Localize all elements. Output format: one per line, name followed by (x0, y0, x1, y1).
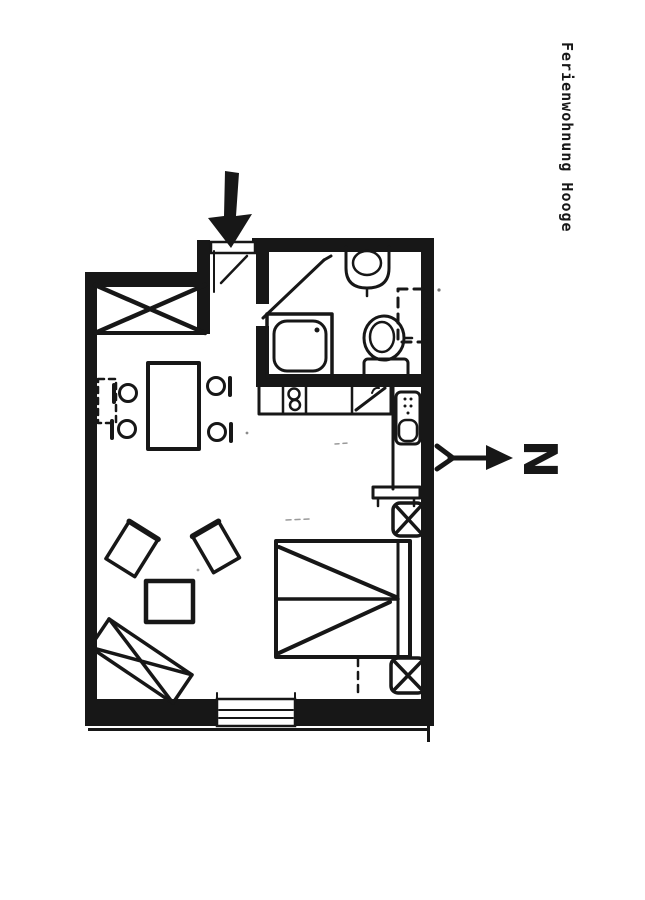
toilet (364, 316, 412, 378)
wardrobe (95, 285, 205, 333)
shower (267, 314, 332, 377)
chair (208, 378, 231, 396)
window (217, 693, 295, 726)
double-bed (276, 541, 410, 657)
dining-table (148, 363, 199, 449)
left-wall (85, 272, 97, 726)
sitting-area (90, 521, 239, 703)
bottom-wall-right (295, 699, 434, 726)
entrance-door-swing (221, 256, 247, 283)
stove (289, 389, 301, 411)
bathroom-door-swing (263, 260, 324, 318)
bench (90, 619, 192, 703)
coffee-table (146, 581, 193, 622)
chair (114, 385, 137, 403)
kitchen-sink (356, 388, 385, 410)
boiler (396, 392, 420, 444)
bottom-wall-left (85, 699, 217, 726)
bedside-stool (393, 503, 424, 536)
washbasin (346, 247, 389, 296)
armchair (106, 521, 158, 576)
bathroom-top-wall (252, 238, 434, 252)
bedside-stool (391, 658, 425, 693)
compass-north-letter: N (513, 440, 567, 479)
right-wall-foot (427, 726, 430, 742)
compass: N (437, 440, 567, 479)
scanned-floor-plan-page: Ferienwohnung Hooge (0, 0, 645, 900)
kitchenette (259, 385, 420, 506)
chair (209, 424, 232, 442)
entrance-door (211, 242, 255, 292)
armchair (193, 521, 240, 572)
dining-area (112, 363, 231, 449)
bathroom-left-wall-upper (256, 252, 269, 304)
floor-plan-drawing: N (0, 0, 645, 900)
bathroom (263, 247, 426, 378)
compass-arrowhead (486, 445, 513, 470)
entrance-arrow (208, 171, 252, 248)
bottom-wall-outline (88, 728, 430, 731)
